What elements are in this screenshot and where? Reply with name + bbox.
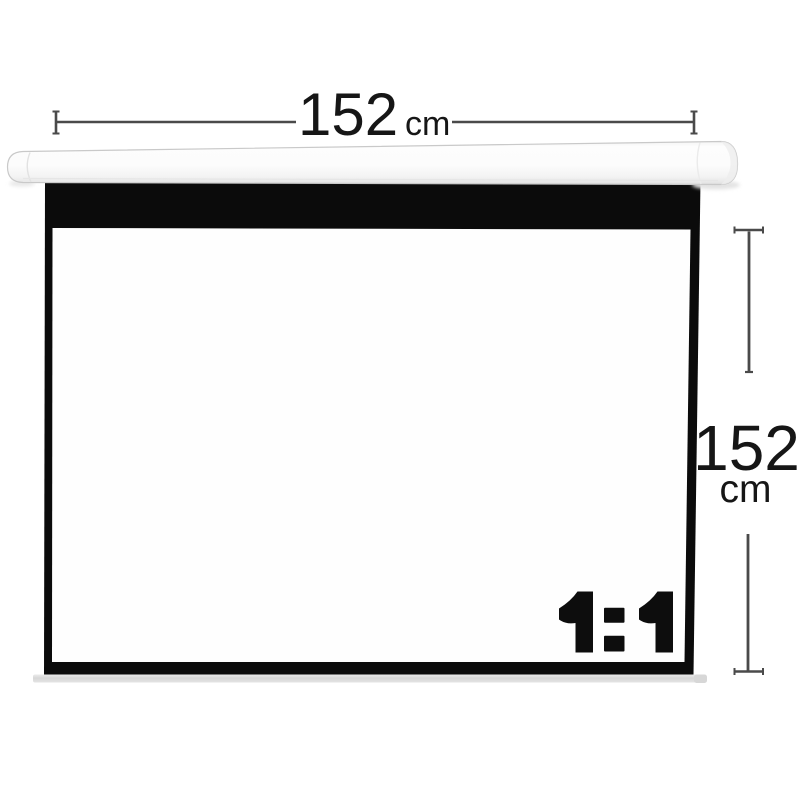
svg-text:152: 152 bbox=[298, 81, 398, 148]
svg-text:cm: cm bbox=[405, 105, 450, 143]
svg-text:cm: cm bbox=[720, 468, 772, 511]
